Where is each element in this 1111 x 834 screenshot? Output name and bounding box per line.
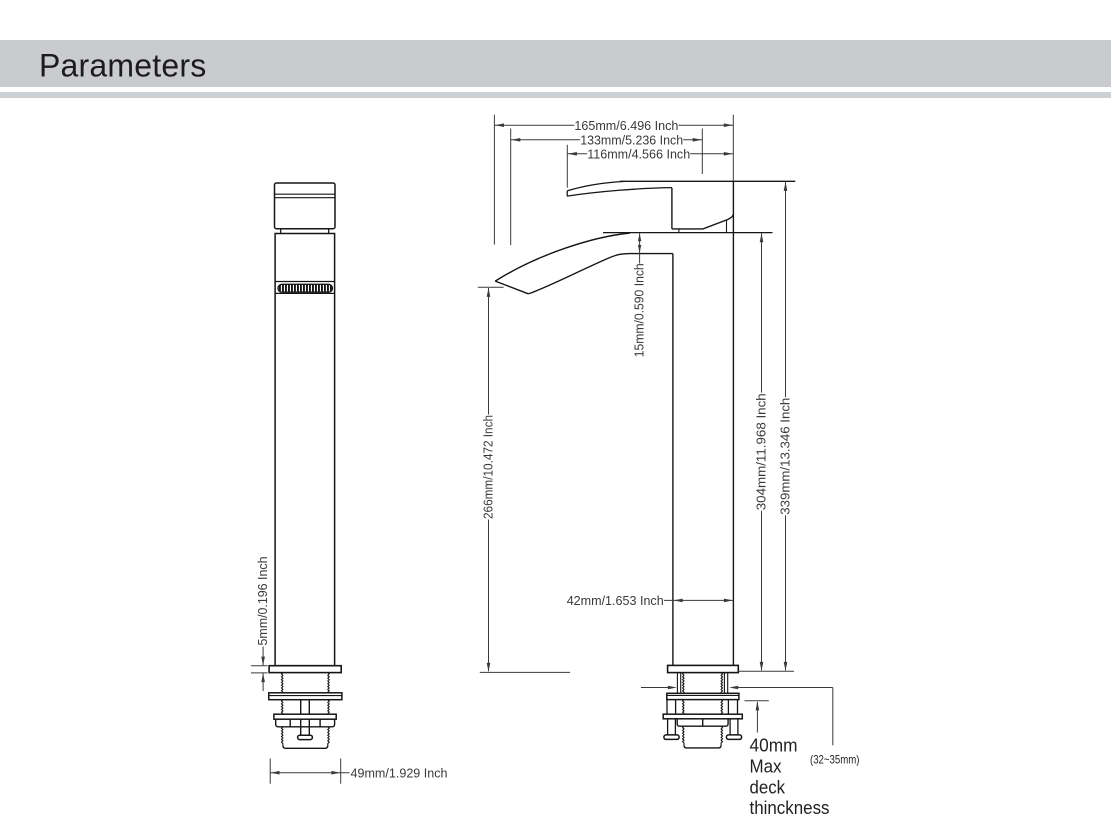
svg-text:165mm/6.496 Inch: 165mm/6.496 Inch [574,118,678,133]
svg-text:40mm: 40mm [750,736,798,756]
svg-text:133mm/5.236 Inch: 133mm/5.236 Inch [580,133,683,148]
svg-text:5mm/0.196 Inch: 5mm/0.196 Inch [255,557,270,646]
svg-text:(32~35mm): (32~35mm) [810,753,860,767]
svg-text:49mm/1.929 Inch: 49mm/1.929 Inch [351,765,448,780]
svg-text:thinckness: thinckness [750,798,830,818]
svg-text:deck: deck [750,777,786,797]
svg-text:42mm/1.653 Inch: 42mm/1.653 Inch [567,593,664,608]
svg-text:266mm/10.472 Inch: 266mm/10.472 Inch [481,415,496,519]
svg-text:Max: Max [750,757,782,777]
svg-text:304mm/11.968 Inch: 304mm/11.968 Inch [754,393,769,510]
svg-text:15mm/0.590 Inch: 15mm/0.590 Inch [632,263,647,357]
svg-text:339mm/13.346 Inch: 339mm/13.346 Inch [778,398,793,515]
svg-text:116mm/4.566 Inch: 116mm/4.566 Inch [587,147,690,162]
